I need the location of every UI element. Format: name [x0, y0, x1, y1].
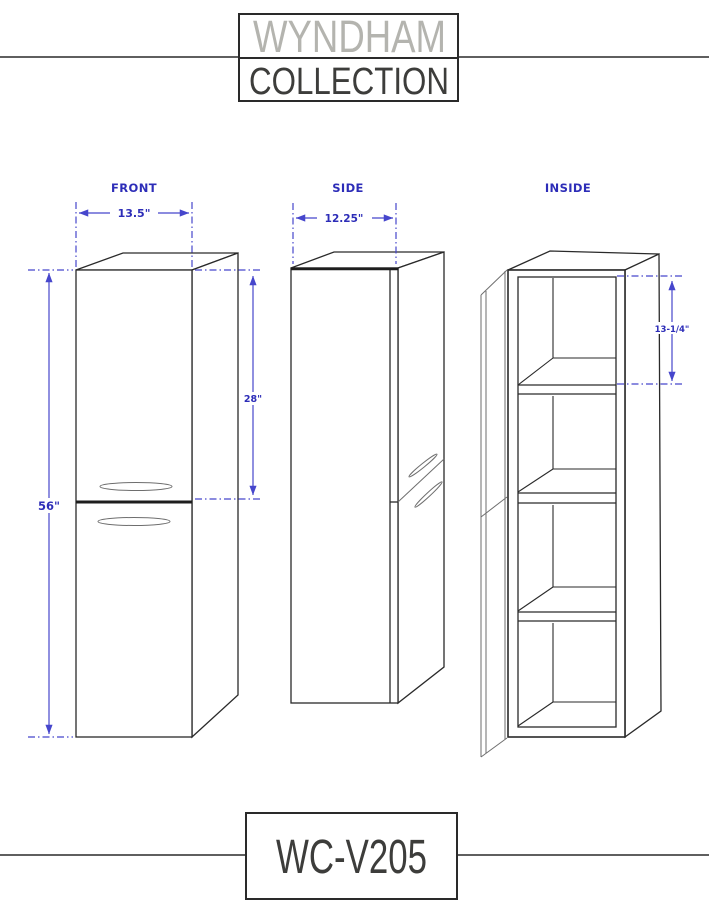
- header: WYNDHAM COLLECTION: [0, 11, 709, 103]
- inside-view-drawing: [481, 251, 661, 757]
- side-view-label: SIDE: [332, 181, 364, 195]
- front-upper-door-handle: [100, 483, 172, 491]
- front-right-side-face: [192, 253, 238, 737]
- front-height-value: 56": [38, 499, 60, 513]
- inside-view-label: INSIDE: [545, 181, 591, 195]
- side-front-receding-face: [398, 252, 444, 703]
- technical-drawing: WYNDHAM COLLECTION FRONT SIDE INSIDE 13.…: [0, 0, 709, 904]
- front-width-value: 13.5": [118, 207, 151, 220]
- brand-name-bottom: COLLECTION: [249, 61, 449, 103]
- side-view-drawing: [291, 252, 444, 703]
- front-upper-section-value: 28": [244, 394, 262, 405]
- door-bottom-edge: [481, 738, 507, 757]
- door-top-edge: [481, 270, 507, 295]
- open-door: [481, 270, 507, 757]
- side-face: [291, 268, 398, 703]
- door-divider-line: [481, 497, 507, 517]
- front-lower-door-handle: [98, 518, 170, 526]
- footer: WC-V205: [0, 813, 709, 899]
- inside-opening-value: 13-1/4": [655, 325, 690, 335]
- model-code: WC-V205: [276, 831, 427, 884]
- front-view-drawing: [76, 253, 238, 737]
- brand-name-top: WYNDHAM: [253, 11, 446, 62]
- front-view-label: FRONT: [111, 181, 157, 195]
- side-depth-value: 12.25": [325, 213, 364, 225]
- spec-sheet-page: WYNDHAM COLLECTION FRONT SIDE INSIDE 13.…: [0, 0, 709, 904]
